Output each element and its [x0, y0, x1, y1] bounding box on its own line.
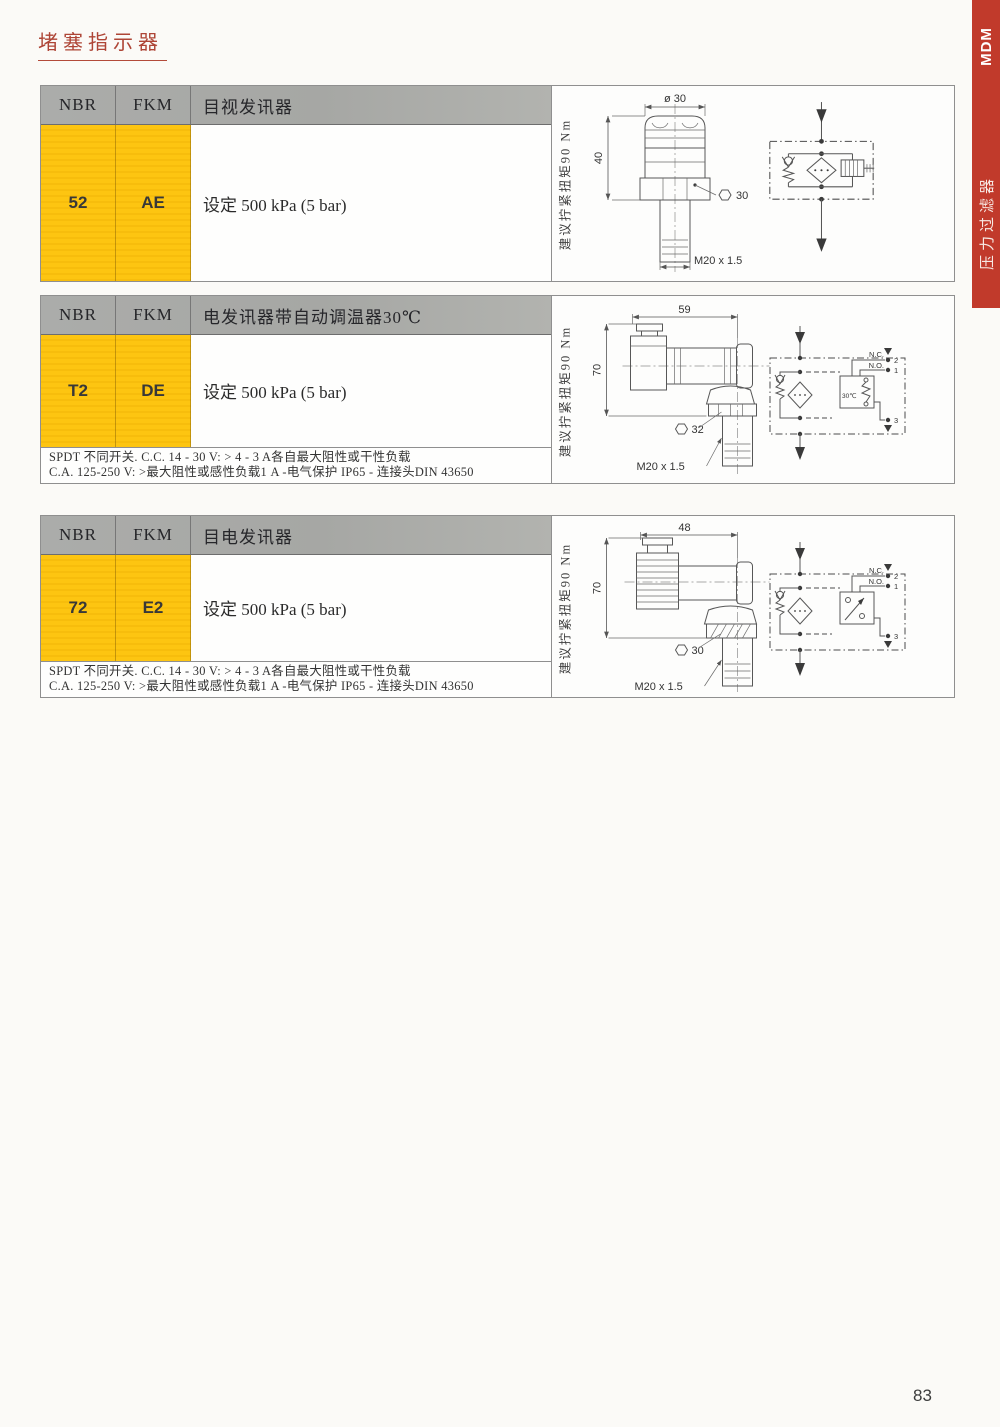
brand-label: MDM: [978, 27, 995, 66]
header-cell-nbr: NBR: [41, 296, 116, 334]
hex-icon: [676, 645, 688, 655]
header-cell-title: 电发讯器带自动调温器30℃: [191, 296, 551, 334]
fkm-code-cell: DE: [116, 335, 191, 447]
setting-cell: 设定 500 kPa (5 bar): [191, 335, 551, 447]
hex-icon: [676, 424, 688, 434]
sidebar-category-label: 压力过滤器: [976, 175, 997, 270]
thermostat-switch-icon: 30℃: [840, 376, 874, 408]
dim-height-label: 70: [592, 364, 604, 376]
terminal-2-label: 2: [894, 356, 898, 365]
table-row: 52 AE 设定 500 kPa (5 bar): [41, 125, 551, 281]
microswitch-icon: [840, 592, 874, 624]
sidebar-tab: MDM 压力过滤器: [972, 0, 1000, 308]
terminal-3-label: 3: [894, 632, 898, 641]
circuit-diagram: [757, 100, 887, 255]
drawing-panel: 建议拧紧扭矩90 Nm 48: [551, 516, 954, 697]
fkm-code-cell: E2: [116, 555, 191, 661]
pin-arrow-icon: [884, 564, 892, 571]
filter-icon: [807, 158, 836, 183]
note-line: SPDT 不同开关. C.C. 14 - 30 V: > 4 - 3 A各自最大…: [49, 450, 543, 465]
circuit-diagram: N.C. N.O. 2 1 3: [760, 540, 915, 678]
circuit-diagram: 30℃ N.C. N.O. 2 1 3: [760, 324, 915, 462]
torque-note: 建议拧紧扭矩90 Nm: [555, 524, 574, 694]
din-connector: [631, 324, 667, 390]
torque-note: 建议拧紧扭矩90 Nm: [555, 100, 574, 270]
table-row: T2 DE 设定 500 kPa (5 bar): [41, 335, 551, 447]
hex-icon: [719, 190, 731, 200]
dim-width-label: 48: [678, 522, 690, 534]
section-electric-thermostat-indicator: NBR FKM 电发讯器带自动调温器30℃ T2 DE 设定 500 kPa (…: [40, 295, 955, 484]
terminal-1-label: 1: [894, 582, 898, 591]
page-title: 堵塞指示器: [38, 26, 167, 61]
cable-connector: [637, 538, 679, 609]
pin-arrow-icon: [884, 425, 892, 432]
indicator-table: NBR FKM 电发讯器带自动调温器30℃ T2 DE 设定 500 kPa (…: [41, 296, 551, 483]
section-visual-indicator: NBR FKM 目视发讯器 52 AE 设定 500 kPa (5 bar) 建…: [40, 85, 955, 282]
page-number: 83: [913, 1386, 932, 1406]
no-label: N.O.: [869, 577, 884, 586]
torque-note: 建议拧紧扭矩90 Nm: [555, 307, 574, 477]
header-cell-fkm: FKM: [116, 296, 191, 334]
indicator-table: NBR FKM 目视发讯器 52 AE 设定 500 kPa (5 bar): [41, 86, 551, 281]
filter-icon: [788, 598, 812, 624]
hex-nut: [705, 606, 757, 624]
header-cell-title: 目视发讯器: [191, 86, 551, 124]
table-header: NBR FKM 目视发讯器: [41, 86, 551, 125]
drawing-panel: 建议拧紧扭矩90 Nm ø 30: [551, 86, 954, 281]
filter-icon: [788, 382, 812, 408]
table-header: NBR FKM 电发讯器带自动调温器30℃: [41, 296, 551, 335]
flow-out-arrow-icon: [795, 663, 805, 676]
header-cell-nbr: NBR: [41, 86, 116, 124]
header-cell-fkm: FKM: [116, 516, 191, 554]
table-header: NBR FKM 目电发讯器: [41, 516, 551, 555]
note-line: C.A. 125-250 V: >最大阻性或感性负载1 A -电气保护 IP65…: [49, 679, 543, 694]
dim-thread-label: M20 x 1.5: [637, 461, 685, 473]
indicator-table: NBR FKM 目电发讯器 72 E2 设定 500 kPa (5 bar) S…: [41, 516, 551, 697]
nbr-code-cell: T2: [41, 335, 116, 447]
no-label: N.O.: [869, 361, 884, 370]
dim-width-label: 59: [678, 304, 690, 316]
drawing-panel: 建议拧紧扭矩90 Nm 59: [551, 296, 954, 483]
flow-out-arrow-icon: [795, 447, 805, 460]
pin-arrow-icon: [884, 641, 892, 648]
indicator-icon: [841, 154, 874, 187]
terminal-2-label: 2: [894, 572, 898, 581]
temp-label: 30℃: [842, 392, 857, 400]
terminal-1-label: 1: [894, 366, 898, 375]
header-cell-nbr: NBR: [41, 516, 116, 554]
device-drawing: ø 30 30 M20 x 1.5: [590, 92, 770, 277]
table-row: 72 E2 设定 500 kPa (5 bar): [41, 555, 551, 661]
header-cell-title: 目电发讯器: [191, 516, 551, 554]
flow-out-arrow-icon: [816, 238, 826, 251]
note-line: SPDT 不同开关. C.C. 14 - 30 V: > 4 - 3 A各自最大…: [49, 664, 543, 679]
section-visual-electric-indicator: NBR FKM 目电发讯器 72 E2 设定 500 kPa (5 bar) S…: [40, 515, 955, 698]
flow-in-arrow-icon: [795, 548, 805, 560]
hex-nut: [707, 386, 755, 404]
flow-in-arrow-icon: [795, 332, 805, 344]
nc-label: N.C.: [869, 350, 884, 359]
header-cell-fkm: FKM: [116, 86, 191, 124]
electrical-notes: SPDT 不同开关. C.C. 14 - 30 V: > 4 - 3 A各自最大…: [41, 661, 551, 697]
fkm-code-cell: AE: [116, 125, 191, 281]
nbr-code-cell: 72: [41, 555, 116, 661]
pin-arrow-icon: [884, 348, 892, 355]
note-line: C.A. 125-250 V: >最大阻性或感性负载1 A -电气保护 IP65…: [49, 465, 543, 480]
dim-hex-label: 30: [692, 645, 704, 657]
dim-height-label: 40: [593, 152, 605, 164]
nc-label: N.C.: [869, 566, 884, 575]
check-valve-icon: [782, 154, 794, 187]
nbr-code-cell: 52: [41, 125, 116, 281]
dim-thread-label: M20 x 1.5: [694, 255, 742, 267]
dim-hex-label: 30: [736, 190, 748, 202]
setting-cell: 设定 500 kPa (5 bar): [191, 555, 551, 661]
dim-diameter-label: ø 30: [664, 93, 686, 105]
flow-in-arrow-icon: [816, 109, 826, 122]
setting-cell: 设定 500 kPa (5 bar): [191, 125, 551, 281]
dim-height-label: 70: [592, 582, 604, 594]
terminal-3-label: 3: [894, 416, 898, 425]
electrical-notes: SPDT 不同开关. C.C. 14 - 30 V: > 4 - 3 A各自最大…: [41, 447, 551, 483]
dim-thread-label: M20 x 1.5: [635, 681, 683, 693]
